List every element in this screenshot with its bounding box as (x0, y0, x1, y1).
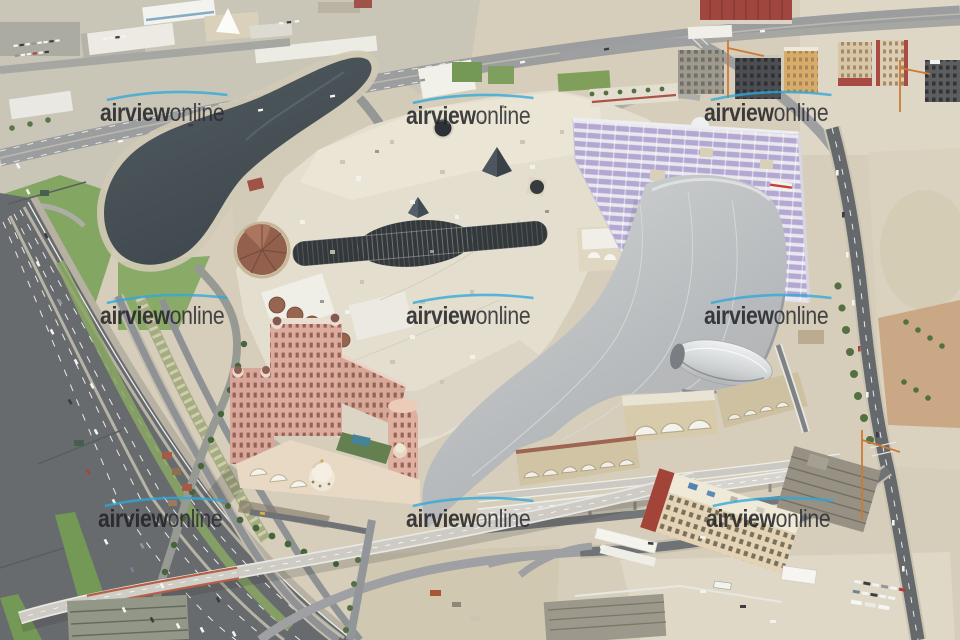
aerial-scene (0, 0, 960, 640)
aerial-photograph: airviewonline airviewonline airviewonlin… (0, 0, 960, 640)
atmospheric-haze (0, 0, 960, 640)
